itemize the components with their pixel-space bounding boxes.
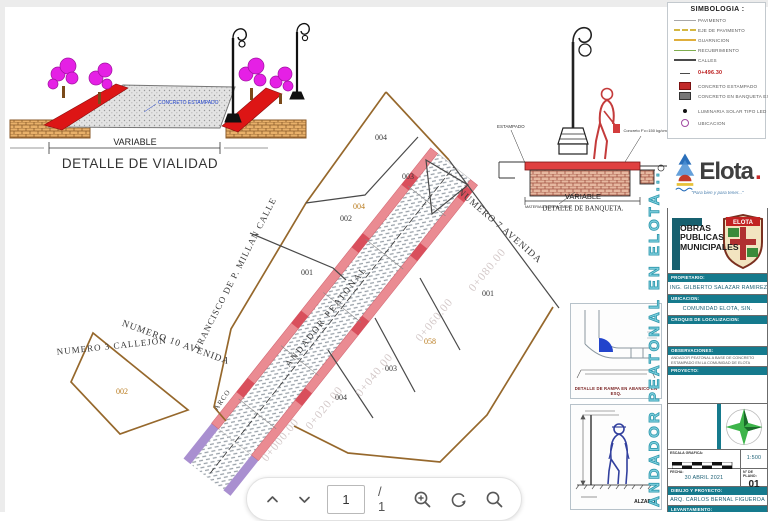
banqueta-note-right: Concreto F'c=150 kg/cm2 — [623, 128, 669, 133]
rotate-button[interactable] — [447, 488, 470, 511]
leader-right — [625, 136, 641, 162]
page-left-margin — [0, 0, 5, 512]
pdf-toolbar: / 1 — [246, 477, 522, 521]
legend-item: UBICACION — [672, 118, 763, 128]
north-left-cell — [668, 404, 721, 449]
legend-panel: SIMBOLOGIA : PAVIMENTO EJE DE PAVIMENTO … — [667, 2, 766, 139]
svg-text:0+080.00: 0+080.00 — [467, 246, 509, 294]
legend-item: GUARNICION — [672, 35, 763, 45]
location-row: UBICACION: COMUNIDAD ELOTA, SIN. — [667, 295, 768, 316]
luminaria-dot-swatch — [683, 109, 687, 113]
project-label: PROYECTO: — [668, 367, 767, 375]
cadenamiento-line-swatch — [680, 73, 690, 74]
north-arrow-cell — [721, 404, 767, 449]
legend-item: PAVIMENTO — [672, 15, 763, 25]
drawing-label: DIBUJO Y PROYECTO: — [668, 487, 767, 495]
page-count-label: / 1 — [378, 484, 385, 514]
calles-line-swatch — [674, 59, 696, 61]
location-label: UBICACION: — [668, 295, 767, 303]
svg-text:001: 001 — [301, 268, 313, 277]
date-row: FECHA: 30 ABRIL 2021 N° DE PLANO: 01 — [667, 469, 768, 487]
next-page-button[interactable] — [295, 490, 314, 509]
search-icon — [485, 490, 504, 509]
ubicacion-ring-swatch — [681, 119, 689, 127]
plan-no-label: N° DE PLANO: — [741, 469, 767, 479]
brand-dot: . — [755, 158, 762, 186]
legend-item: EJE DE PAVIMENTO — [672, 25, 763, 35]
scale-label: ESCALA GRAFICA: — [668, 450, 740, 456]
street-millan: FRANCISCO DE P. MILLAN CALLE — [192, 196, 278, 352]
zoom-in-icon — [413, 490, 432, 509]
zoom-in-button[interactable] — [411, 488, 434, 511]
department-box: OBRAS PUBLICAS MUNICIPALES ELOTA — [667, 208, 768, 274]
person-figure-red — [594, 89, 620, 160]
concreto-estampado-swatch — [679, 82, 691, 90]
north-arrow-icon — [724, 407, 764, 447]
search-button[interactable] — [483, 488, 506, 511]
guarnicion-line-swatch — [674, 39, 696, 41]
street-callejon3: NUMERO 3 CALLEJON — [56, 335, 167, 356]
scale-left: ESCALA GRAFICA: — [668, 450, 741, 468]
date-value: 30 ABRIL 2021 — [668, 475, 740, 481]
project-row: PROYECTO: — [667, 367, 768, 404]
department-label: OBRAS PUBLICAS MUNICIPALES — [680, 224, 736, 252]
legend-item: CONCRETO ESTAMPADO — [672, 81, 763, 91]
chevron-up-icon — [265, 492, 280, 507]
legend-item: RECUBRIMIENTO — [672, 45, 763, 55]
recubrimiento-line-swatch — [674, 50, 696, 51]
brand-box: Elota. "Para bien y para tener..." — [667, 150, 768, 208]
owner-label: PROPIETARIO: — [668, 274, 767, 282]
concreto-existente-swatch — [679, 92, 691, 100]
svg-text:002: 002 — [340, 214, 352, 223]
scale-row: ESCALA GRAFICA: 1:500 — [667, 450, 768, 469]
page-top-margin — [0, 0, 768, 7]
scale-bar-icon — [672, 462, 734, 469]
page-number-input[interactable] — [327, 485, 365, 514]
svg-text:0+040.00: 0+040.00 — [354, 351, 396, 399]
drawing-value: ARQ. CARLOS BERNAL FIGUEROA — [668, 495, 767, 505]
svg-text:004: 004 — [375, 133, 387, 142]
elota-emblem-icon — [673, 151, 697, 193]
notes-value: ANDADOR PEATONAL A BASE DE CONCRETO ESTA… — [668, 355, 767, 366]
title-block: Elota. "Para bien y para tener..." OBRAS… — [667, 150, 768, 512]
owner-row: PROPIETARIO: ING. GILBERTO SALAZAR RAMIR… — [667, 274, 768, 295]
svg-text:001: 001 — [482, 289, 494, 298]
location-value: COMUNIDAD ELOTA, SIN. — [668, 303, 767, 315]
croquis-row: CROQUIS DE LOCALIZACION: — [667, 316, 768, 347]
croquis-label: CROQUIS DE LOCALIZACION: — [668, 316, 767, 324]
crest-banner: ELOTA — [733, 220, 754, 226]
owner-value: ING. GILBERTO SALAZAR RAMIREZ — [668, 282, 767, 294]
rampa-blue-fan — [599, 338, 613, 352]
svg-text:004: 004 — [353, 202, 365, 211]
brand-wordmark: Elota — [699, 158, 753, 186]
site-plan-drawing: ANDADOR PEATONAL 004 003 004 002 001 001… — [40, 78, 575, 498]
north-row — [667, 404, 768, 450]
svg-text:003: 003 — [402, 172, 414, 181]
date-left: FECHA: 30 ABRIL 2021 — [668, 469, 741, 486]
legend-item: CONCRETO EN BANQUETA EXISTENTE — [672, 91, 763, 101]
previous-page-button[interactable] — [263, 490, 282, 509]
croquis-empty — [668, 324, 767, 346]
person-figure-blue — [608, 424, 629, 484]
project-empty — [668, 375, 767, 403]
survey-label: LEVANTAMIENTO: — [668, 506, 767, 512]
legend-title: SIMBOLOGIA : — [672, 6, 763, 13]
legend-item: LUMINARIA SOLAR TIPO LED — [672, 106, 763, 116]
rotate-icon — [449, 490, 468, 509]
legend-item: CALLES — [672, 55, 763, 65]
notes-label: OBSERVACIONES: — [668, 347, 767, 355]
svg-text:002: 002 — [116, 387, 128, 396]
notes-row: OBSERVACIONES: ANDADOR PEATONAL A BASE D… — [667, 347, 768, 367]
drawing-row: DIBUJO Y PROYECTO: ARQ. CARLOS BERNAL FI… — [667, 487, 768, 506]
pavimento-line-swatch — [674, 20, 696, 21]
scale-value: 1:500 — [741, 450, 767, 464]
survey-row: LEVANTAMIENTO: TEC. TOP. GERARDO MILLAN … — [667, 506, 768, 512]
scale-value-cell: 1:500 — [741, 450, 767, 468]
legend-item: 0+496.30 — [672, 68, 763, 78]
chevron-down-icon — [297, 492, 312, 507]
eje-dash-swatch — [674, 29, 696, 31]
plan-no-cell: N° DE PLANO: 01 — [741, 469, 767, 486]
